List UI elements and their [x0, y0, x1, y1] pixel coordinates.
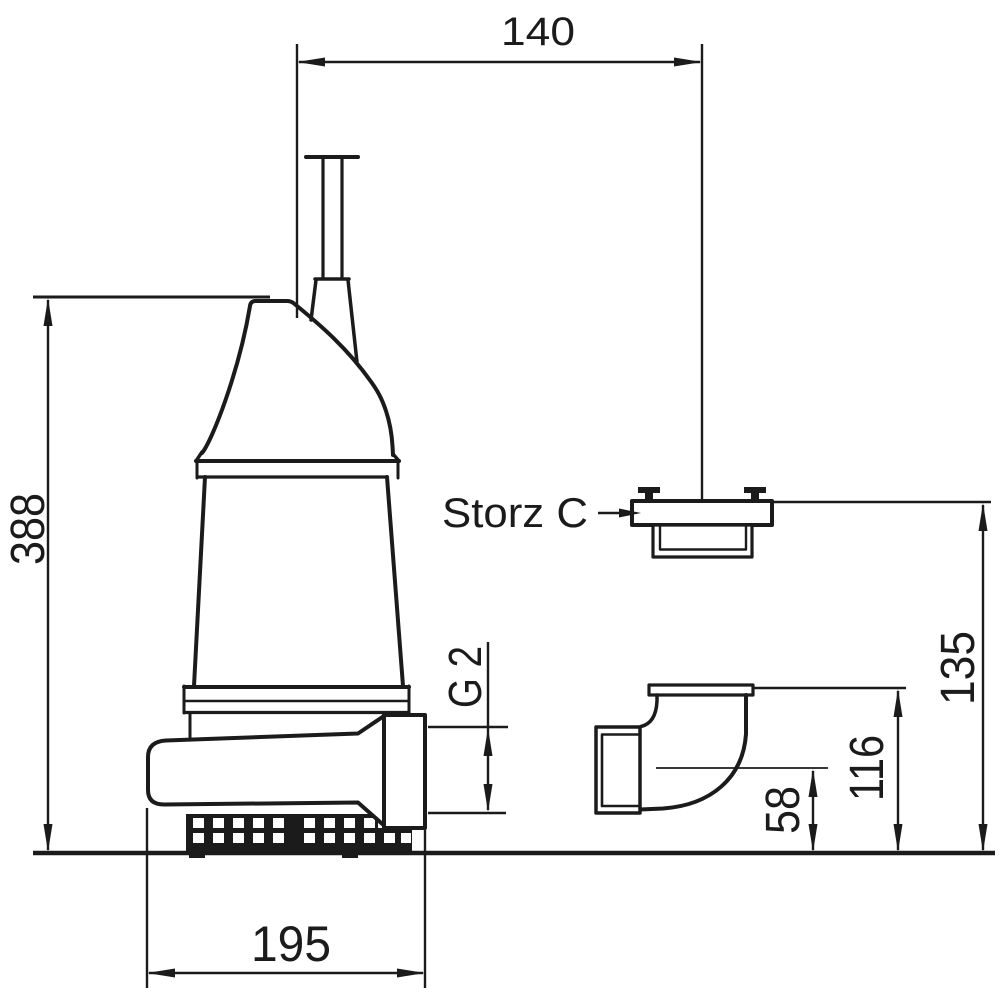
dim-label-58: 58: [757, 786, 810, 834]
dimension-58: 58: [656, 768, 828, 852]
motor-housing: [196, 301, 399, 478]
cable-gland: [311, 279, 357, 362]
coupling-body: [632, 501, 772, 525]
dim-label-116: 116: [841, 735, 894, 801]
dimension-140: 140: [297, 10, 702, 500]
dim-label-g2: G 2: [439, 646, 491, 708]
dim-label-135: 135: [932, 631, 985, 705]
dim-label-140: 140: [501, 10, 575, 54]
coupling-label: Storz C: [442, 489, 588, 536]
drawing-canvas: 388 140 195 G 2 58: [0, 0, 1000, 1000]
dimension-g2: G 2: [428, 642, 508, 813]
coupling-socket: [653, 525, 752, 557]
elbow-body: [640, 695, 746, 810]
elbow-socket: [596, 727, 640, 813]
volute-housing: [148, 716, 384, 826]
pump-side-view: [148, 157, 425, 858]
dim-label-195: 195: [251, 916, 331, 972]
pump-dimension-drawing: 388 140 195 G 2 58: [0, 0, 1000, 1000]
discharge-elbow: [596, 685, 753, 813]
elbow-flange: [649, 685, 753, 695]
dim-label-388: 388: [2, 493, 55, 565]
carry-handle-cable: [306, 157, 358, 278]
pump-casing-taper: [194, 477, 403, 686]
storz-leader: Storz C: [442, 489, 641, 536]
discharge-port: [384, 715, 425, 828]
